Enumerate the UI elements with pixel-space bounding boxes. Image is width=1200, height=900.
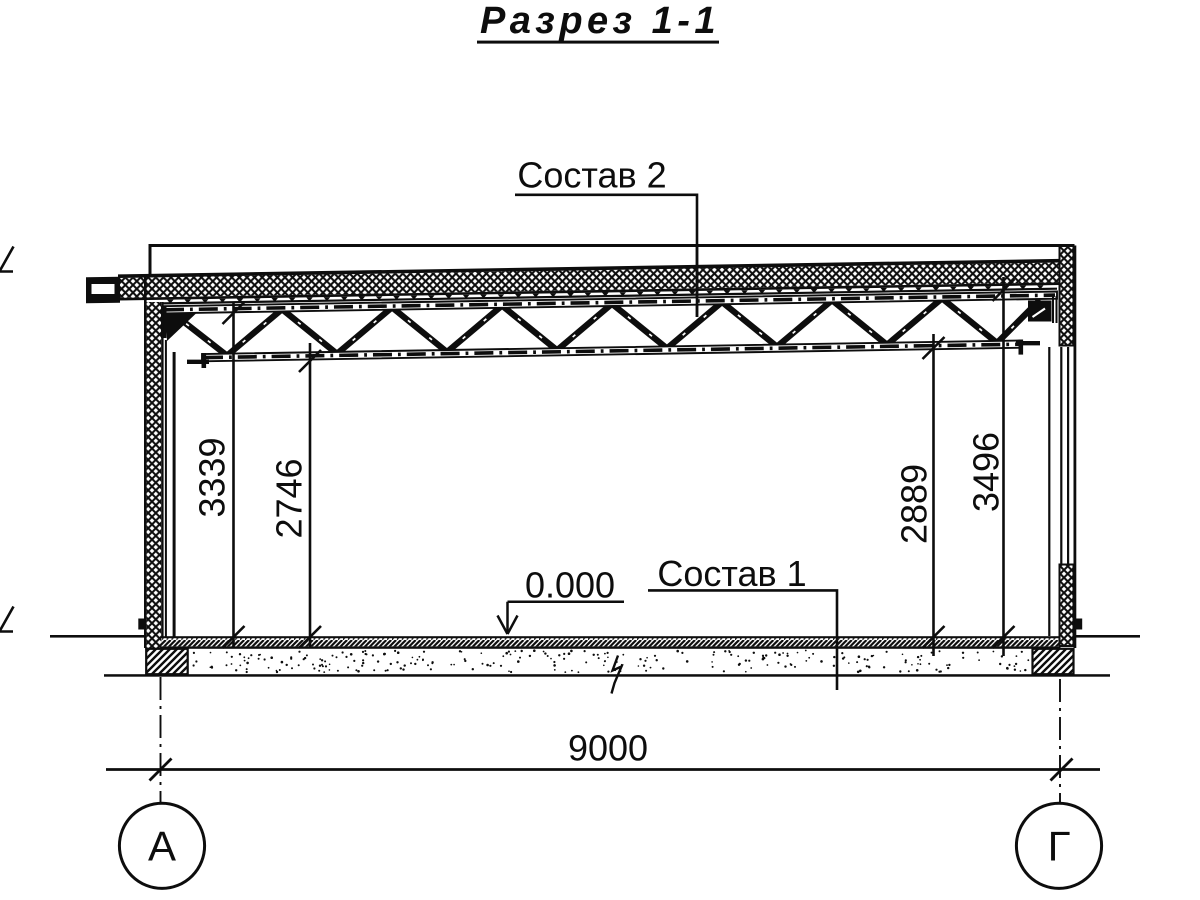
svg-text:Состав 2: Состав 2: [517, 155, 666, 196]
svg-text:Состав 1: Состав 1: [657, 553, 806, 594]
svg-text:3496: 3496: [966, 432, 1007, 512]
svg-text:9000: 9000: [568, 728, 648, 769]
svg-text:Разрез 1-1: Разрез 1-1: [480, 0, 720, 42]
svg-text:Г: Г: [1048, 823, 1071, 870]
svg-text:0.000: 0.000: [525, 565, 615, 606]
svg-text:3339: 3339: [192, 437, 233, 517]
svg-text:2889: 2889: [894, 464, 935, 544]
svg-text:2746: 2746: [269, 458, 310, 538]
svg-text:А: А: [148, 823, 176, 870]
